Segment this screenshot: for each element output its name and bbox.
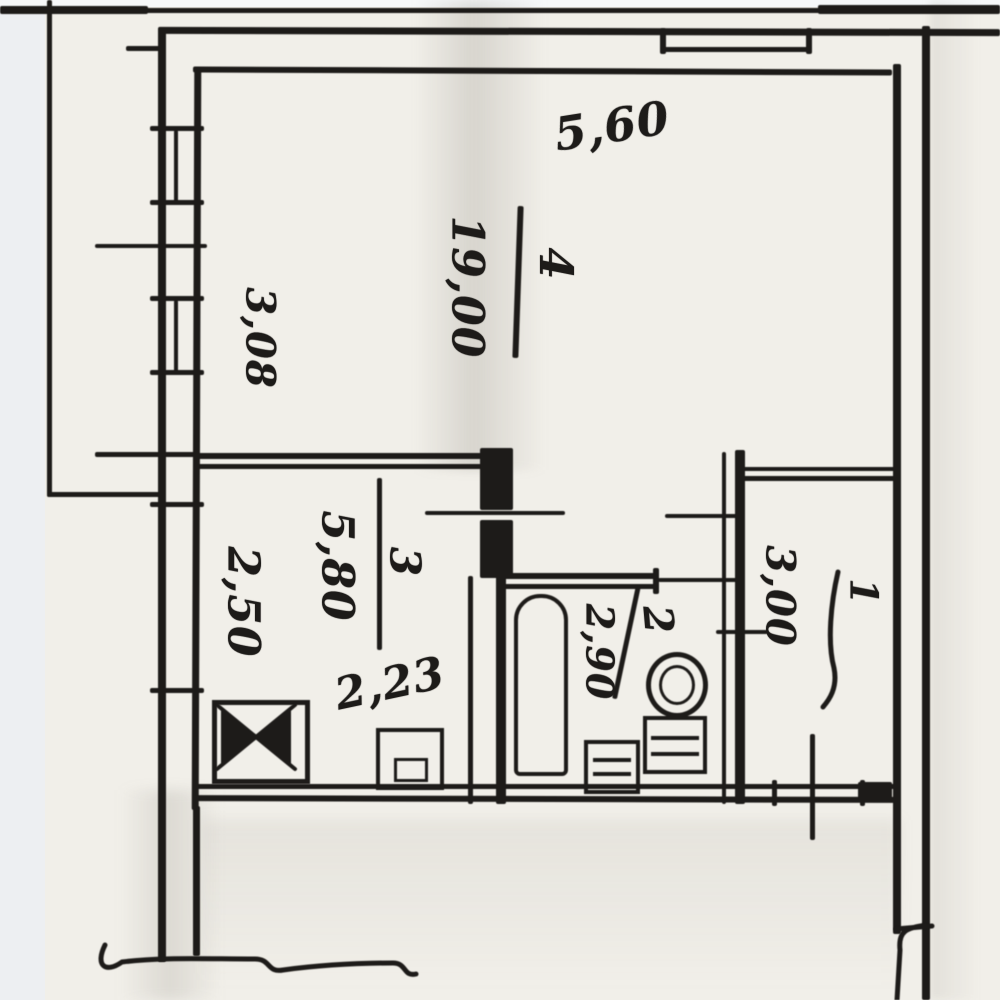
floor-plan-scan: 5,60 19,00 4 3,08 2,50 5,80 3 2,23 2,90 … xyxy=(0,0,1000,1000)
living-room-area: 19,00 xyxy=(442,216,493,359)
hall-area: 3,00 xyxy=(757,545,804,646)
hall-number: 1 xyxy=(842,578,887,605)
kitchen-area: 5,80 xyxy=(312,510,363,621)
kitchen-dim-height: 2,50 xyxy=(218,546,269,657)
kitchen-dim-width: 2,23 xyxy=(330,648,449,721)
living-room-number: 4 xyxy=(529,247,583,280)
labels-layer: 5,60 19,00 4 3,08 2,50 5,80 3 2,23 2,90 … xyxy=(0,0,1000,1000)
dimension-top-width: 5,60 xyxy=(550,90,673,161)
dimension-left-height: 3,08 xyxy=(237,287,284,388)
bath-number: 2 xyxy=(633,604,682,637)
bath-area: 2,90 xyxy=(578,604,623,701)
kitchen-number: 3 xyxy=(381,547,430,577)
